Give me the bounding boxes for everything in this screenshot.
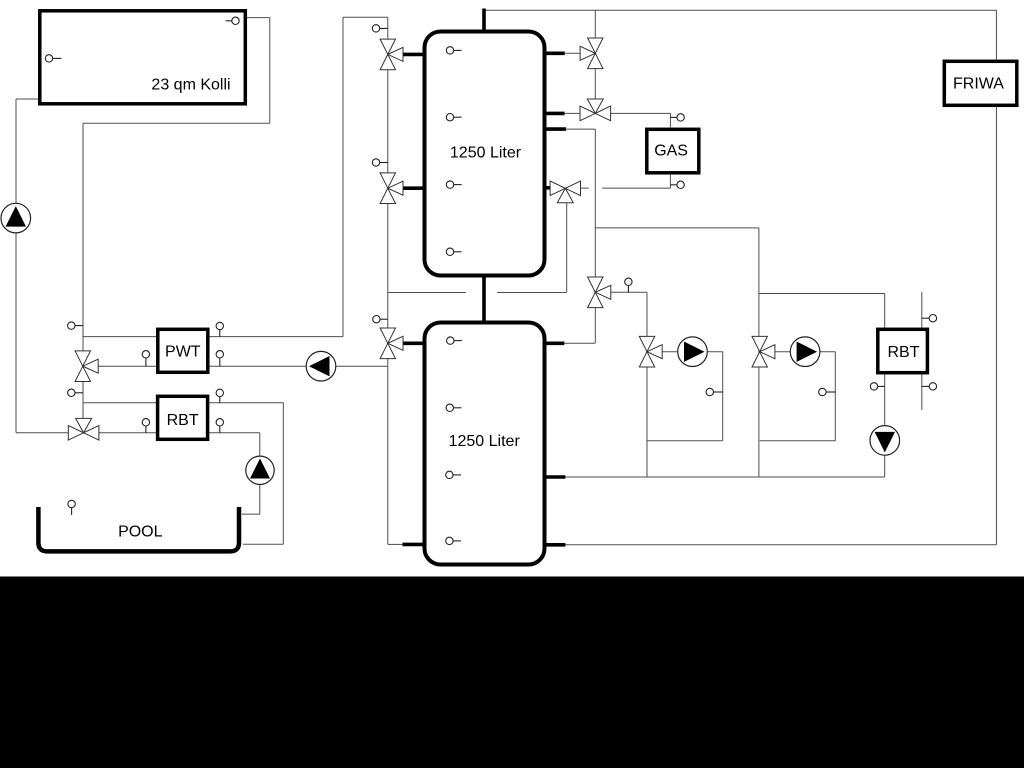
svg-text:1250 Liter: 1250 Liter	[450, 144, 522, 161]
svg-text:RBT: RBT	[888, 344, 920, 361]
svg-text:RBT: RBT	[167, 412, 199, 429]
svg-text:PWT: PWT	[165, 344, 201, 361]
svg-text:1250 Liter: 1250 Liter	[449, 433, 521, 450]
svg-text:POOL: POOL	[118, 524, 163, 541]
svg-text:23 qm Kolli: 23 qm Kolli	[151, 77, 230, 94]
svg-text:FRIWA: FRIWA	[953, 76, 1004, 93]
svg-text:GAS: GAS	[654, 143, 688, 160]
